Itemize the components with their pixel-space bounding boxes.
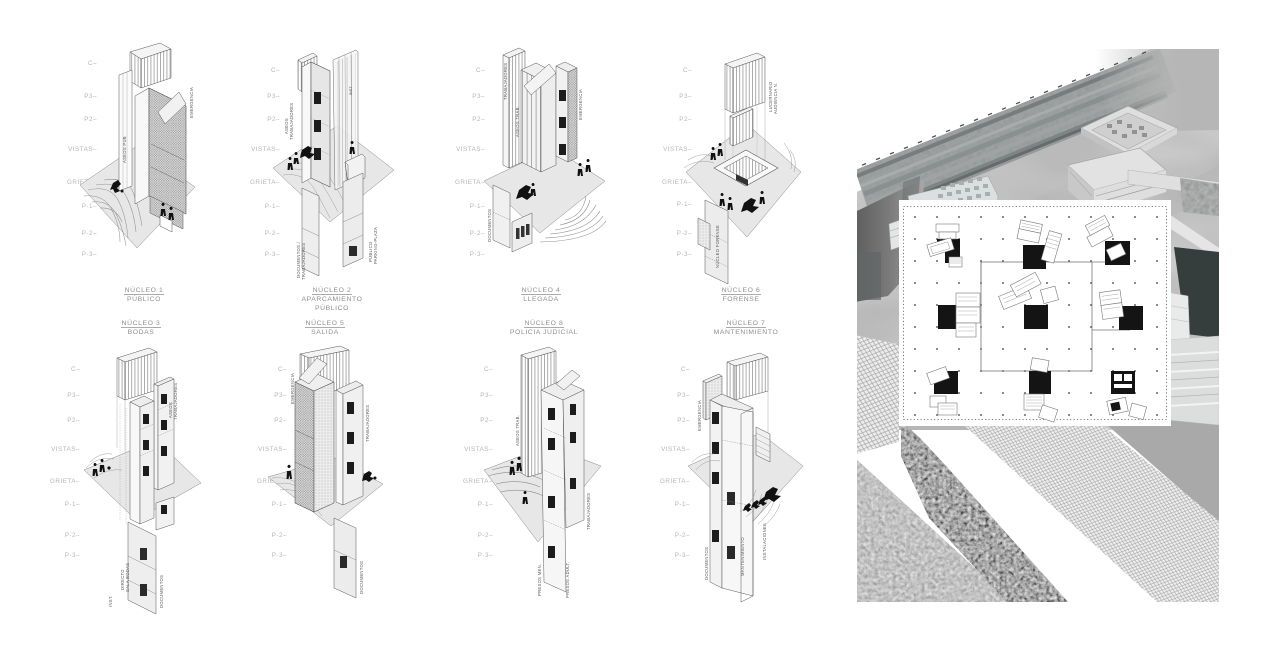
svg-text:P-3–: P-3– bbox=[478, 552, 493, 559]
svg-text:P2–: P2– bbox=[267, 116, 280, 123]
svg-text:P3–: P3– bbox=[679, 93, 692, 100]
svg-text:P-3–: P-3– bbox=[265, 251, 280, 258]
svg-text:GRIETA–: GRIETA– bbox=[455, 179, 485, 186]
svg-text:INSTALACIONES: INSTALACIONES bbox=[762, 523, 767, 560]
svg-text:C–: C– bbox=[476, 67, 485, 74]
svg-text:C–: C– bbox=[681, 366, 690, 373]
svg-text:ASEOS PUB: ASEOS PUB bbox=[122, 136, 127, 163]
svg-text:VISTAS–: VISTAS– bbox=[663, 146, 692, 153]
svg-text:P-1–: P-1– bbox=[675, 501, 690, 508]
svg-text:P2–: P2– bbox=[472, 116, 485, 123]
svg-text:GRIETA–: GRIETA– bbox=[662, 179, 692, 186]
svg-text:VISTAS–: VISTAS– bbox=[456, 146, 485, 153]
svg-text:AUDIENCIA N.: AUDIENCIA N. bbox=[773, 82, 778, 114]
svg-text:APARCAMIENTO: APARCAMIENTO bbox=[302, 296, 363, 303]
svg-text:PRESOS ADULT.: PRESOS ADULT. bbox=[565, 562, 570, 598]
svg-text:FORENSE: FORENSE bbox=[722, 296, 759, 303]
svg-text:NÚCLEO 3: NÚCLEO 3 bbox=[122, 318, 161, 327]
svg-text:P-1–: P-1– bbox=[65, 501, 80, 508]
svg-text:P3–: P3– bbox=[480, 392, 493, 399]
svg-text:DOCUMENTOS: DOCUMENTOS bbox=[159, 575, 164, 608]
svg-text:P-3–: P-3– bbox=[677, 251, 692, 258]
svg-text:P-3–: P-3– bbox=[675, 552, 690, 559]
svg-text:P3–: P3– bbox=[84, 93, 97, 100]
svg-text:VISTAS–: VISTAS– bbox=[68, 146, 97, 153]
svg-text:P2–: P2– bbox=[84, 116, 97, 123]
svg-text:P-1–: P-1– bbox=[272, 501, 287, 508]
svg-text:BODAS: BODAS bbox=[128, 329, 155, 336]
svg-text:P2–: P2– bbox=[679, 116, 692, 123]
svg-text:INST.: INST. bbox=[108, 595, 113, 607]
svg-text:DOCUMENTOS: DOCUMENTOS bbox=[487, 209, 492, 242]
svg-text:EMERGENCIA: EMERGENCIA bbox=[697, 400, 702, 431]
svg-text:SALA BODAS: SALA BODAS bbox=[125, 563, 130, 592]
svg-text:P-3–: P-3– bbox=[82, 251, 97, 258]
svg-text:PÚBLICO: PÚBLICO bbox=[315, 303, 349, 312]
svg-text:P-2–: P-2– bbox=[265, 230, 280, 237]
svg-text:EMERGENCIA: EMERGENCIA bbox=[290, 373, 295, 404]
svg-text:NÚCLEO 6: NÚCLEO 6 bbox=[722, 285, 761, 294]
svg-text:GRIETA–: GRIETA– bbox=[250, 179, 280, 186]
svg-text:P-3–: P-3– bbox=[65, 552, 80, 559]
svg-text:C–: C– bbox=[71, 366, 80, 373]
svg-text:C–: C– bbox=[278, 366, 287, 373]
svg-text:INST: INST bbox=[349, 86, 353, 95]
svg-text:TRABAJADORES: TRABAJADORES bbox=[586, 493, 591, 530]
svg-text:EMERGENCIA: EMERGENCIA bbox=[578, 89, 583, 120]
svg-text:NÚCLEO 5: NÚCLEO 5 bbox=[306, 318, 345, 327]
svg-text:P-1–: P-1– bbox=[265, 203, 280, 210]
svg-text:P-1–: P-1– bbox=[677, 201, 692, 208]
svg-text:MANTENIMIENTO: MANTENIMIENTO bbox=[714, 329, 779, 336]
svg-text:GRIETA–: GRIETA– bbox=[660, 478, 690, 485]
svg-text:P3–: P3– bbox=[677, 392, 690, 399]
svg-text:VISTAS–: VISTAS– bbox=[251, 146, 280, 153]
svg-text:NÚCLEO 1: NÚCLEO 1 bbox=[125, 285, 164, 294]
svg-text:NÚCLEO 4: NÚCLEO 4 bbox=[522, 285, 561, 294]
svg-text:VISTAS–: VISTAS– bbox=[661, 446, 690, 453]
svg-text:TRABAJADORES: TRABAJADORES bbox=[365, 405, 370, 442]
svg-text:SALIDA: SALIDA bbox=[311, 329, 339, 336]
svg-text:P-2–: P-2– bbox=[65, 532, 80, 539]
svg-text:NÚCLEO 8: NÚCLEO 8 bbox=[525, 318, 564, 327]
svg-text:MANTENIMIENTO: MANTENIMIENTO bbox=[740, 537, 745, 576]
svg-text:P-1–: P-1– bbox=[82, 203, 97, 210]
svg-text:P-2–: P-2– bbox=[677, 230, 692, 237]
svg-text:P3–: P3– bbox=[472, 93, 485, 100]
svg-text:ASEOS TRAB.: ASEOS TRAB. bbox=[515, 415, 520, 446]
svg-text:P-1–: P-1– bbox=[478, 501, 493, 508]
svg-text:TRABAJADORES: TRABAJADORES bbox=[289, 103, 294, 140]
svg-text:LLEGADA: LLEGADA bbox=[523, 296, 559, 303]
svg-text:C–: C– bbox=[88, 60, 97, 67]
svg-text:GRIETA–: GRIETA– bbox=[50, 478, 80, 485]
svg-text:P-2–: P-2– bbox=[82, 230, 97, 237]
svg-text:POLICIA JUDICIAL: POLICIA JUDICIAL bbox=[510, 329, 578, 336]
svg-text:P3–: P3– bbox=[67, 392, 80, 399]
svg-text:C–: C– bbox=[683, 67, 692, 74]
svg-text:P3–: P3– bbox=[274, 392, 287, 399]
svg-text:NÚCLEO 2: NÚCLEO 2 bbox=[313, 285, 352, 294]
svg-text:PARKING-PLAZA: PARKING-PLAZA bbox=[373, 227, 378, 264]
svg-text:TRABAJADORES: TRABAJADORES bbox=[301, 243, 306, 280]
svg-text:P-2–: P-2– bbox=[272, 532, 287, 539]
svg-text:PRESOS MEN.: PRESOS MEN. bbox=[537, 564, 542, 596]
svg-text:DOCUMENTOS: DOCUMENTOS bbox=[359, 561, 364, 594]
svg-text:NÚCLEO FORENSE: NÚCLEO FORENSE bbox=[715, 225, 720, 268]
svg-text:P-3–: P-3– bbox=[470, 251, 485, 258]
svg-text:P-2–: P-2– bbox=[675, 532, 690, 539]
svg-text:VISTAS–: VISTAS– bbox=[464, 446, 493, 453]
svg-text:P3–: P3– bbox=[267, 93, 280, 100]
svg-text:GRIETA–: GRIETA– bbox=[463, 478, 493, 485]
svg-text:P-3–: P-3– bbox=[272, 552, 287, 559]
svg-text:VISTAS–: VISTAS– bbox=[258, 446, 287, 453]
svg-text:EMERGENCIA: EMERGENCIA bbox=[189, 87, 194, 118]
svg-text:P2–: P2– bbox=[677, 417, 690, 424]
svg-text:ASEOS TRAB.: ASEOS TRAB. bbox=[515, 106, 520, 137]
svg-text:NÚCLEO 7: NÚCLEO 7 bbox=[727, 318, 766, 327]
svg-text:PÚBLICO: PÚBLICO bbox=[127, 294, 161, 303]
svg-text:P-2–: P-2– bbox=[470, 230, 485, 237]
svg-text:DOCUMENTOS: DOCUMENTOS bbox=[704, 547, 709, 580]
svg-text:VISTAS–: VISTAS– bbox=[51, 446, 80, 453]
svg-text:TRABAJADORES: TRABAJADORES bbox=[503, 63, 508, 100]
svg-text:C–: C– bbox=[484, 366, 493, 373]
svg-text:C–: C– bbox=[271, 67, 280, 74]
svg-text:P2–: P2– bbox=[274, 417, 287, 424]
svg-text:TRABAJADORES: TRABAJADORES bbox=[173, 383, 178, 420]
svg-text:P-2–: P-2– bbox=[478, 532, 493, 539]
svg-text:P2–: P2– bbox=[67, 417, 80, 424]
svg-text:P2–: P2– bbox=[480, 417, 493, 424]
svg-text:P-1–: P-1– bbox=[470, 203, 485, 210]
